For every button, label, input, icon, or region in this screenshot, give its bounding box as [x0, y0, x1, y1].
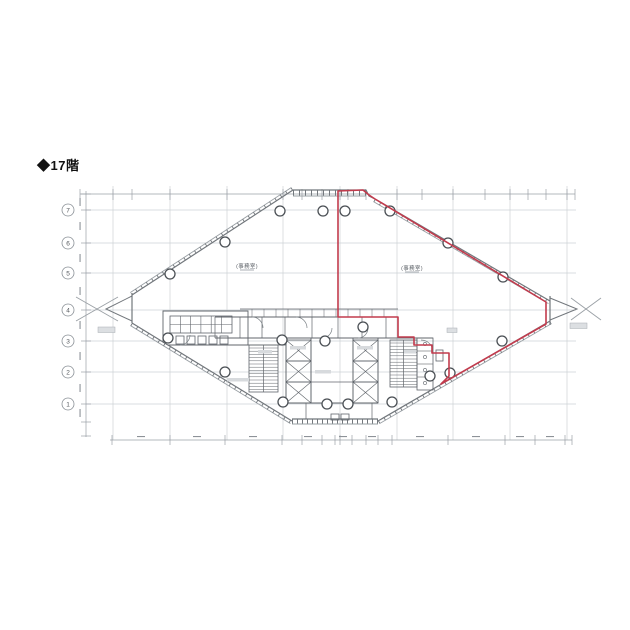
- tiny-label-strip: [227, 378, 249, 382]
- dimension-text-dash: [80, 287, 81, 295]
- dimension-text-dash: [80, 409, 81, 417]
- office-label-right: (事務室): [401, 264, 423, 272]
- column-circle: [322, 399, 332, 409]
- office-door-leaf: [436, 350, 443, 361]
- column-circle: [343, 399, 353, 409]
- grid-axis-left: 7 6 5 4 3 2 1: [62, 204, 74, 410]
- column-circle: [318, 206, 328, 216]
- axis-label: 2: [66, 369, 70, 376]
- dimension-text-dash: [80, 198, 81, 206]
- dimension-text-dash: [339, 436, 347, 437]
- office-sublabel-right: [405, 272, 419, 273]
- dimension-text-dash: [80, 321, 81, 329]
- restroom-fixture: [423, 355, 426, 358]
- door-swing-arc: [296, 317, 307, 328]
- dimension-text-dash: [193, 436, 201, 437]
- tiny-label-strip: [357, 346, 373, 350]
- wall-line: [380, 324, 552, 424]
- wall-line: [130, 187, 291, 292]
- tiny-label-strip: [315, 370, 331, 374]
- axis-bubble: 2: [62, 366, 74, 378]
- column-circle: [220, 367, 230, 377]
- axis-label: 4: [66, 307, 70, 314]
- dimension-text-dash: [80, 352, 81, 360]
- dimension-text-dash: [80, 254, 81, 262]
- dimension-text-dash: [304, 436, 312, 437]
- column-circle: [387, 397, 397, 407]
- restroom-fixture: [423, 381, 426, 384]
- column-circle: [497, 336, 507, 346]
- axis-bubble: 7: [62, 204, 74, 216]
- axis-label: 6: [66, 240, 70, 247]
- dimension-text-dash: [249, 436, 257, 437]
- core-rooms-layer: [163, 309, 443, 420]
- office-sublabel-left: [240, 270, 254, 271]
- tenant-area-red-outline: [338, 190, 546, 384]
- axis-bubble: 3: [62, 335, 74, 347]
- axis-label: 3: [66, 338, 70, 345]
- tiny-label-strip: [404, 350, 416, 354]
- axis-label: 1: [66, 401, 70, 408]
- floor-plan-svg: 7 6 5 4 3 2 1 (事務室) (事務室): [0, 0, 630, 630]
- dimension-text-dash: [516, 436, 524, 437]
- axis-bubble: 6: [62, 237, 74, 249]
- tiny-label-strip: [290, 346, 306, 350]
- axis-label: 7: [66, 207, 70, 214]
- column-circle: [220, 237, 230, 247]
- axis-bubble: 1: [62, 398, 74, 410]
- small-ref-box: [447, 328, 457, 333]
- left-tip-ref-box: [98, 327, 115, 333]
- tiny-label-strip: [258, 350, 272, 354]
- column-circle: [165, 269, 175, 279]
- column-circle: [275, 206, 285, 216]
- column-circle: [320, 336, 330, 346]
- dimension-text-dash: [80, 222, 81, 230]
- door-swing-arc: [252, 317, 263, 328]
- dimension-text-dash: [546, 436, 554, 437]
- column-circle: [425, 371, 435, 381]
- left-tip-triangle: [106, 296, 132, 321]
- dimension-text-dash: [80, 384, 81, 392]
- restroom-fixture: [423, 368, 426, 371]
- right-tip-triangle: [550, 298, 577, 320]
- column-circle: [277, 335, 287, 345]
- dimension-text-dash: [416, 436, 424, 437]
- column-circle: [163, 333, 173, 343]
- wall-hatch: [131, 189, 292, 294]
- column-circle: [340, 206, 350, 216]
- office-label-left: (事務室): [236, 262, 258, 270]
- axis-bubble: 4: [62, 304, 74, 316]
- column-circle: [358, 322, 368, 332]
- dimension-text-dash: [368, 436, 376, 437]
- axis-label: 5: [66, 270, 70, 277]
- dimension-text-dash: [137, 436, 145, 437]
- column-circle: [278, 397, 288, 407]
- right-tip-ref-box: [570, 323, 587, 329]
- axis-bubble: 5: [62, 267, 74, 279]
- dimension-text-dash: [472, 436, 480, 437]
